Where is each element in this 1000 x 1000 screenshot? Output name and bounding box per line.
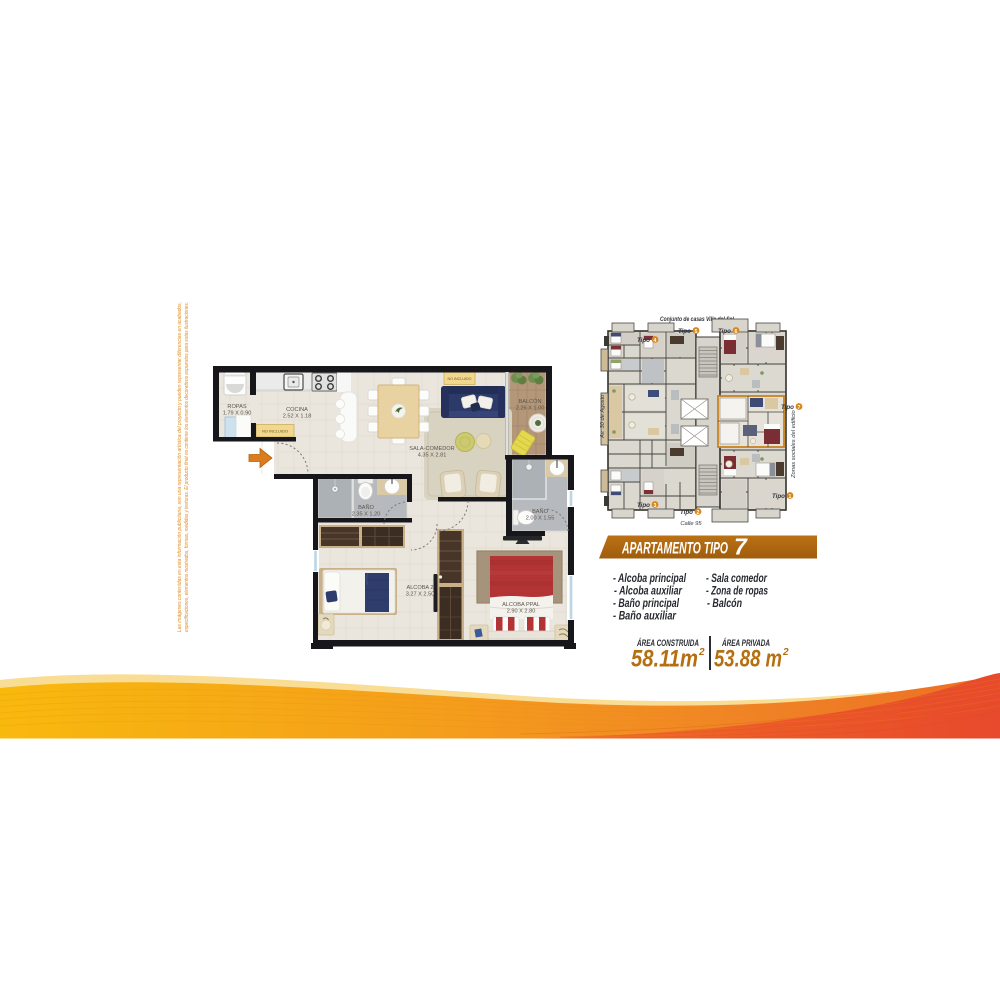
svg-text:2.26 X 1.00: 2.26 X 1.00 bbox=[516, 406, 545, 412]
svg-text:- Alcoba auxiliar: - Alcoba auxiliar bbox=[614, 586, 682, 598]
svg-text:- Baño auxiliar: - Baño auxiliar bbox=[613, 611, 676, 623]
svg-text:- Baño principal: - Baño principal bbox=[613, 598, 680, 610]
svg-text:- Alcoba principal: - Alcoba principal bbox=[613, 573, 687, 585]
svg-text:4: 4 bbox=[654, 338, 657, 344]
svg-text:53.88 m: 53.88 m bbox=[714, 646, 782, 673]
svg-text:Tipo: Tipo bbox=[637, 337, 650, 344]
svg-text:2.52 X 1.18: 2.52 X 1.18 bbox=[283, 414, 312, 420]
svg-text:2.90 X 2.80: 2.90 X 2.80 bbox=[507, 609, 536, 615]
svg-text:especificaciones, elementos mo: especificaciones, elementos mostrados, f… bbox=[184, 302, 190, 632]
svg-text:Tipo: Tipo bbox=[680, 509, 693, 516]
svg-text:7: 7 bbox=[734, 534, 748, 560]
svg-text:Calle 95: Calle 95 bbox=[680, 521, 702, 527]
svg-text:2: 2 bbox=[698, 647, 705, 658]
svg-text:- Balcón: - Balcón bbox=[707, 598, 742, 610]
svg-text:Tipo: Tipo bbox=[781, 404, 794, 411]
svg-text:NO INCLUIDO: NO INCLUIDO bbox=[448, 377, 472, 381]
svg-text:BAÑO: BAÑO bbox=[532, 508, 549, 515]
svg-text:BAÑO: BAÑO bbox=[358, 504, 375, 511]
svg-text:Zonas sociales del edificio: Zonas sociales del edificio bbox=[791, 410, 797, 479]
svg-text:2.35 X 1.20: 2.35 X 1.20 bbox=[352, 512, 381, 518]
svg-text:Tipo: Tipo bbox=[772, 493, 785, 500]
svg-text:Tipo: Tipo bbox=[678, 328, 691, 335]
svg-text:Av. 30 de Agosto: Av. 30 de Agosto bbox=[600, 394, 606, 439]
svg-text:SALA-COMEDOR: SALA-COMEDOR bbox=[409, 446, 454, 452]
svg-text:ROPAS: ROPAS bbox=[227, 404, 246, 410]
svg-text:- Zona de ropas: - Zona de ropas bbox=[706, 586, 768, 598]
svg-text:3: 3 bbox=[654, 503, 657, 509]
svg-text:APARTAMENTO TIPO: APARTAMENTO TIPO bbox=[621, 540, 728, 558]
svg-text:ALCOBA 2: ALCOBA 2 bbox=[406, 585, 433, 591]
svg-text:NO INCLUIDO: NO INCLUIDO bbox=[262, 430, 288, 434]
svg-text:Tipo: Tipo bbox=[637, 502, 650, 509]
svg-text:58.11m: 58.11m bbox=[631, 646, 698, 673]
svg-text:COCINA: COCINA bbox=[286, 407, 308, 413]
svg-text:BALCÓN: BALCÓN bbox=[518, 398, 541, 405]
svg-text:2: 2 bbox=[697, 510, 700, 516]
svg-text:4.35 X 2.81: 4.35 X 2.81 bbox=[418, 453, 447, 459]
svg-text:7: 7 bbox=[798, 405, 801, 411]
svg-text:2.00 X 1.55: 2.00 X 1.55 bbox=[526, 516, 555, 522]
svg-text:6: 6 bbox=[735, 329, 738, 335]
svg-text:3.27 X 2.50: 3.27 X 2.50 bbox=[406, 592, 435, 598]
svg-text:- Sala comedor: - Sala comedor bbox=[706, 573, 767, 585]
svg-text:ALCOBA PPAL: ALCOBA PPAL bbox=[502, 602, 540, 608]
svg-text:1: 1 bbox=[789, 494, 792, 500]
svg-text:2: 2 bbox=[782, 647, 789, 658]
svg-text:1.79 X 0.90: 1.79 X 0.90 bbox=[223, 411, 252, 417]
svg-text:Tipo: Tipo bbox=[718, 328, 731, 335]
svg-text:Las imágenes contenidas en est: Las imágenes contenidas en esta informac… bbox=[177, 302, 183, 632]
svg-text:5: 5 bbox=[695, 329, 698, 335]
